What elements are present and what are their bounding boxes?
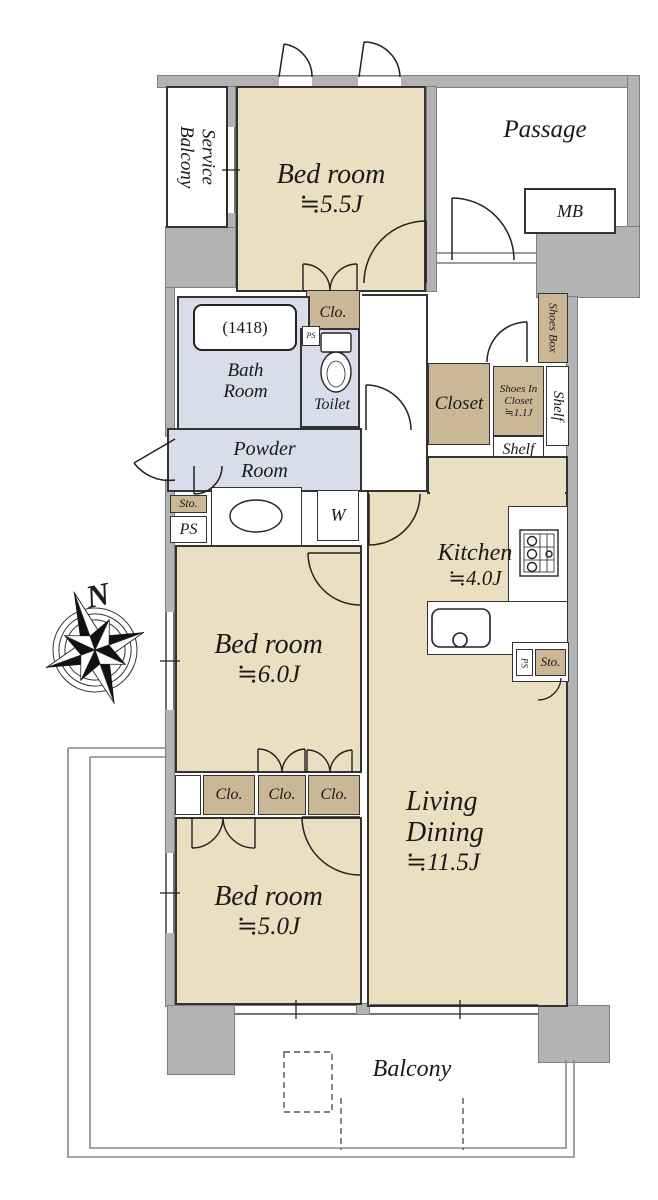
entry-door (452, 198, 514, 260)
door-powder (194, 466, 222, 494)
stove-fixture (520, 530, 558, 576)
toilet-fixture (321, 333, 351, 392)
door-hall (487, 322, 527, 362)
door-toilet (366, 385, 411, 430)
floor-plan: Service Balcony Bed room ≒5.5J Passage M… (0, 0, 658, 1200)
closet-top-doors (303, 264, 357, 291)
door-bedroom-top (364, 221, 426, 283)
closet-bottom-doors (192, 817, 255, 848)
closet-mid-doors (258, 749, 352, 773)
sink-fixture (432, 609, 490, 647)
door-bedroom-mid (308, 553, 360, 605)
door-bedroom-bottom (302, 817, 360, 875)
door-top-2 (359, 42, 400, 77)
balcony-hatch (284, 1052, 463, 1150)
balcony-outline (68, 748, 574, 1157)
basin-fixture (230, 500, 282, 532)
door-living (369, 494, 420, 545)
window-lines (160, 127, 538, 1019)
door-left-out (134, 439, 175, 480)
door-storage-kitchen (538, 678, 561, 700)
door-top-1 (279, 44, 312, 77)
